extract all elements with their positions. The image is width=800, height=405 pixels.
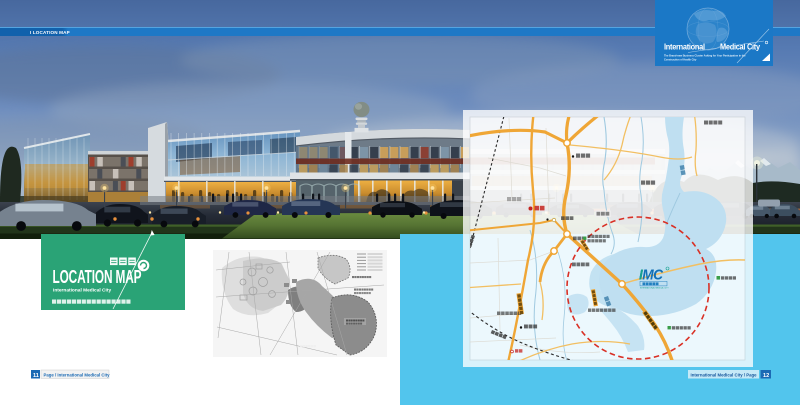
svg-text:International Medical City: International Medical City: [53, 288, 111, 294]
svg-text:The Brand-new Business Cluste: The Brand-new Business Cluster Asking fo…: [664, 55, 746, 58]
svg-text:I LOCATION MAP: I LOCATION MAP: [30, 30, 70, 35]
svg-text:Construction of Health City: Construction of Health City: [664, 58, 697, 61]
svg-text:11: 11: [33, 373, 39, 379]
svg-text:INTERNATIONAL MEDICAL CITY: INTERNATIONAL MEDICAL CITY: [640, 287, 669, 290]
svg-text:International Medical City / P: International Medical City / Page: [691, 372, 757, 377]
svg-text:Page / International Medical C: Page / International Medical City: [44, 372, 110, 377]
svg-text:LOCATION MAP: LOCATION MAP: [53, 267, 142, 287]
svg-text:International: International: [664, 42, 705, 51]
svg-text:12: 12: [763, 373, 769, 379]
